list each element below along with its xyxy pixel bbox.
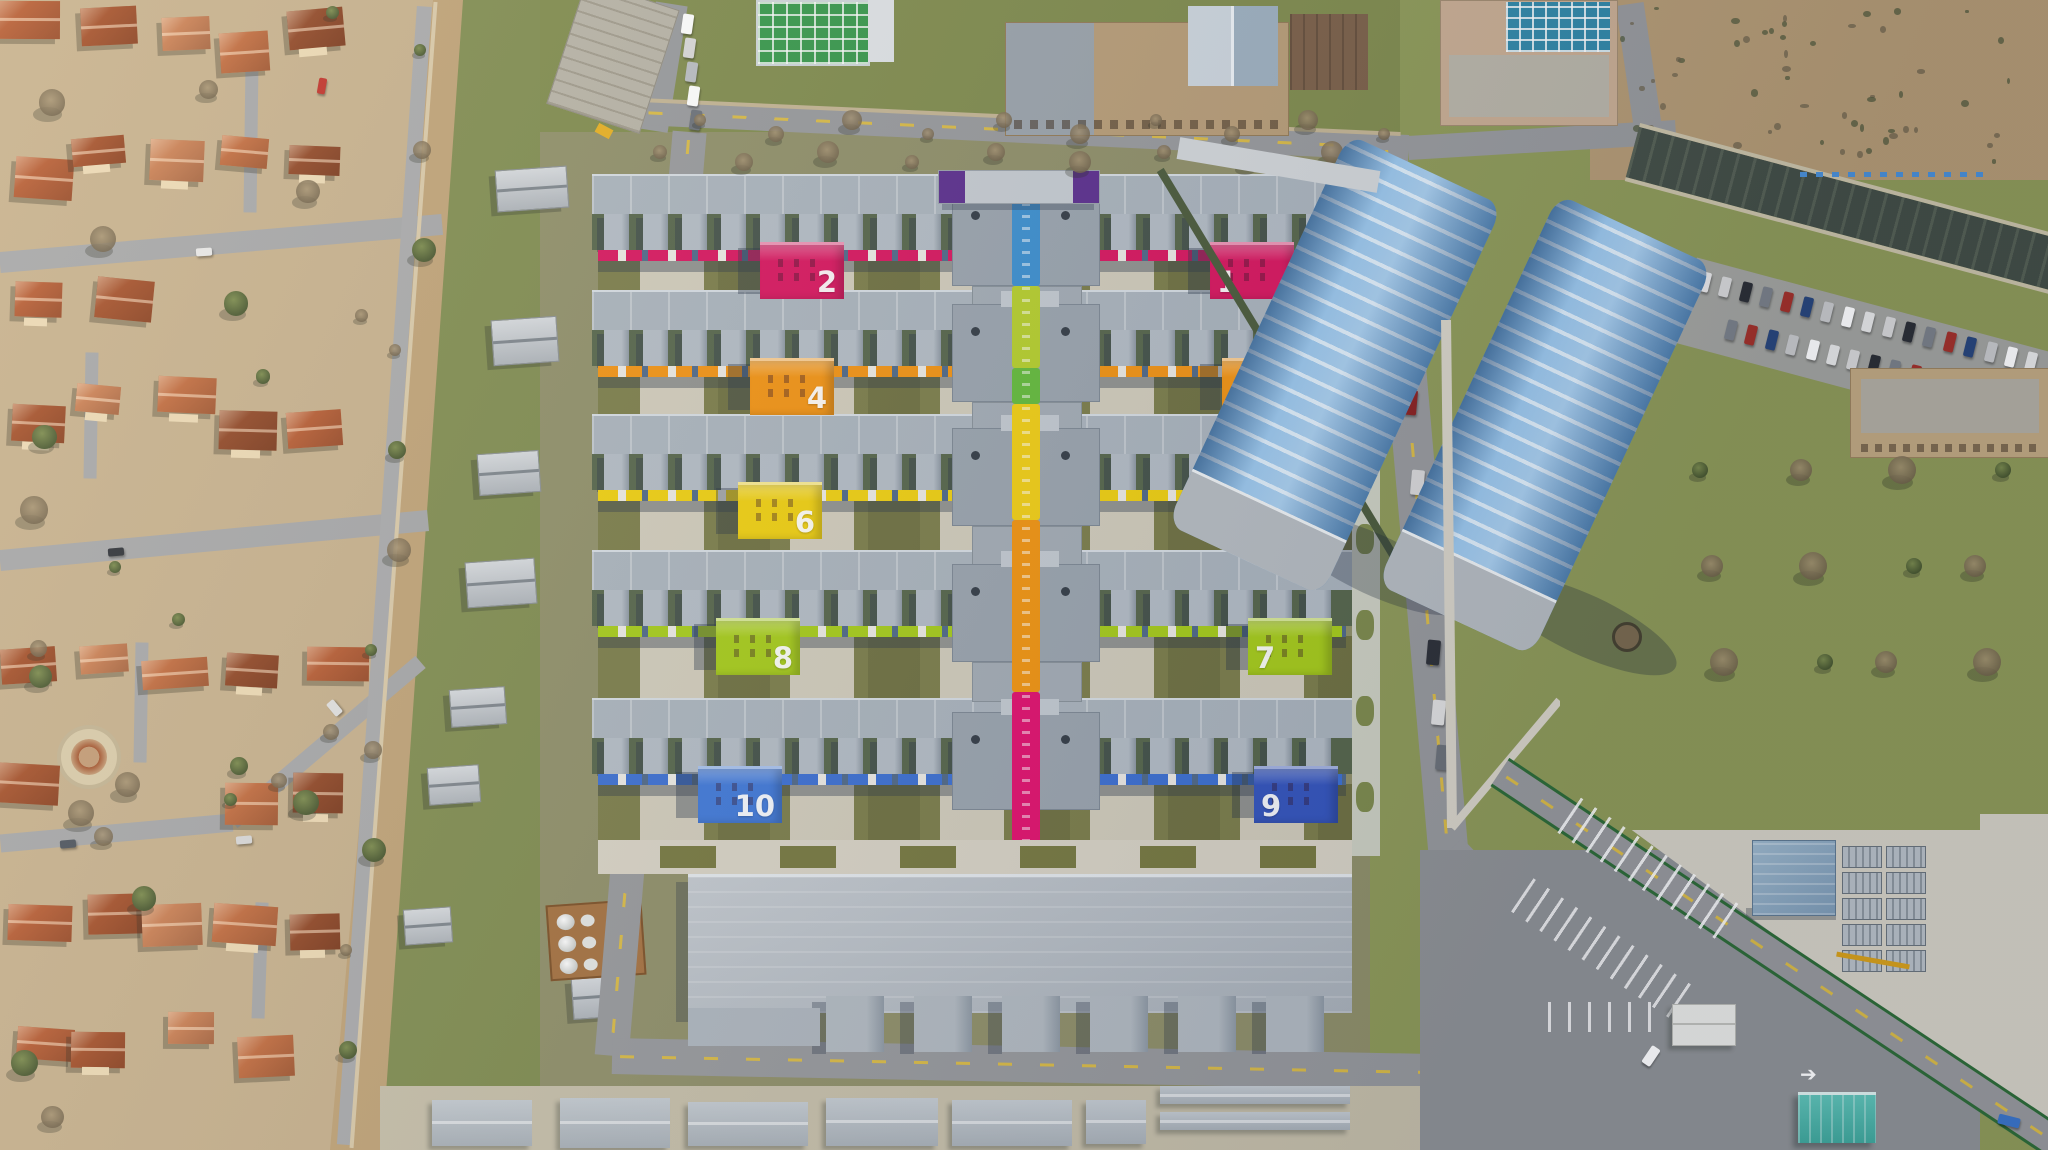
tree [132, 886, 157, 911]
endcap-window [1304, 783, 1309, 791]
endcap-window [794, 259, 799, 267]
bare-tree [735, 153, 753, 171]
endcap-window [1304, 797, 1309, 805]
woodland-tree [1639, 86, 1644, 92]
green-rooftop-plant [756, 0, 870, 66]
roof-tooth [1111, 738, 1136, 776]
car [236, 835, 253, 844]
endcap-window [1244, 259, 1249, 267]
building-number: 4 [807, 384, 827, 413]
cooling-unit [1842, 846, 1882, 868]
storage-tank [556, 913, 575, 930]
roof-tooth [1150, 214, 1175, 252]
big-building-annex [688, 1008, 820, 1046]
east-tan-building [1850, 368, 2048, 458]
endcap-window [1288, 797, 1293, 805]
roof-tooth [1150, 738, 1175, 776]
endcap-window [778, 273, 783, 281]
rooftop-vent [971, 587, 980, 596]
car [60, 839, 77, 848]
roof-ribs [688, 877, 1352, 1013]
tree [293, 790, 319, 816]
bare-tree [817, 141, 839, 163]
roof-tooth [838, 590, 863, 628]
warehouse-roof [952, 1100, 1072, 1146]
shed-ridge [451, 703, 505, 710]
big-building-tooth [914, 996, 972, 1052]
bare-tree [1888, 456, 1916, 484]
bare-tree [694, 114, 706, 126]
south-lawn-patch [900, 846, 956, 868]
shed-ridge [429, 781, 479, 787]
endcap-window [788, 499, 793, 507]
roof-ridge [287, 425, 342, 432]
villa-house [289, 914, 340, 951]
ridge [1160, 1120, 1350, 1123]
villa-house [149, 138, 205, 182]
utility-shed [403, 906, 453, 945]
building-endcap-9: 9 [1254, 766, 1338, 823]
endcap-shadow [1200, 364, 1222, 410]
storage-tank [582, 936, 597, 949]
gate-end-purple [939, 171, 965, 203]
rooftop-vent [971, 211, 980, 220]
roof-tooth [916, 214, 941, 252]
roof-tooth [1111, 590, 1136, 628]
villa-house [80, 6, 138, 47]
roof-ridge [15, 298, 62, 302]
utility-shed [477, 450, 542, 496]
roof-ridge [0, 780, 60, 787]
bike-rack [1912, 172, 1919, 177]
woodland-tree [1762, 30, 1768, 35]
roof-ridge [219, 428, 277, 433]
warehouse-roof [1086, 1100, 1146, 1144]
roof-ridge [238, 1054, 294, 1060]
building-number: 8 [773, 644, 793, 673]
woodland-tree [1880, 26, 1886, 33]
roof-ridge [15, 175, 73, 182]
roof-tooth [838, 330, 863, 368]
south-lawn-patch [1260, 846, 1316, 868]
bare-tree [1799, 552, 1827, 580]
tree [256, 369, 270, 383]
tx [1798, 1095, 1876, 1143]
roof-ridge [150, 157, 204, 162]
roof-tooth [1189, 590, 1214, 628]
warehouse-roof [1160, 1112, 1350, 1130]
bike-rack [1944, 172, 1951, 177]
plaza-pattern [71, 739, 107, 775]
endcap-shadow [676, 772, 698, 818]
grid [1506, 2, 1610, 52]
roof-tooth [721, 330, 746, 368]
woodland-tree [1784, 50, 1788, 58]
woodland-tree [1782, 66, 1791, 72]
endcap-window [1282, 649, 1287, 657]
tooth-shadow [900, 1002, 914, 1054]
woodland-tree [1769, 28, 1774, 34]
tooth-shadow [988, 1002, 1002, 1054]
tree [32, 425, 56, 449]
ridge [560, 1121, 670, 1124]
equipment-island-lawn [1560, 690, 1980, 830]
bare-tree [1710, 648, 1738, 676]
bike-rack [1880, 172, 1887, 177]
villa-house [219, 31, 271, 74]
shed-ridge [479, 469, 539, 476]
pump-house [1752, 840, 1836, 916]
ridge [1231, 6, 1234, 86]
roof-tooth [1111, 214, 1136, 252]
bike-rack [1960, 172, 1967, 177]
villa-house [14, 282, 62, 319]
ridge [1086, 1120, 1146, 1123]
roof-ridge [168, 1027, 214, 1030]
roof-ridge [221, 149, 268, 156]
roof-tooth [916, 738, 941, 776]
endcap-window [1260, 273, 1265, 281]
roof-tooth [877, 214, 902, 252]
shed-ridge [467, 578, 535, 586]
bare-tree [1964, 555, 1986, 577]
endcap-window [800, 389, 805, 397]
villa-house [75, 383, 122, 415]
bare-tree [922, 128, 934, 140]
endcap-window [1244, 273, 1249, 281]
villa-house [286, 409, 344, 449]
roof-ridge [220, 49, 270, 55]
villa-house [8, 904, 74, 942]
endcap-shadow [694, 624, 716, 670]
roof-tooth [1228, 738, 1253, 776]
endcap-window [768, 389, 773, 397]
storage-tank [558, 935, 577, 952]
south-lawn-patch [1140, 846, 1196, 868]
big-building-tooth [1090, 996, 1148, 1052]
roof-ridge [307, 662, 369, 666]
endcap-window [766, 635, 771, 643]
house-patio [231, 449, 260, 458]
roof-ridge [290, 930, 340, 934]
woodland-tree [1857, 151, 1862, 158]
endcap-window [756, 499, 761, 507]
roof-tooth [877, 738, 902, 776]
bare-tree [1875, 651, 1897, 673]
tx [1290, 14, 1368, 90]
tooth-shadow [1076, 1002, 1090, 1054]
woodland-tree [1751, 89, 1759, 96]
bare-tree [842, 110, 862, 130]
rooftop-vent [971, 735, 980, 744]
roof-ridge [96, 296, 153, 305]
bare-tree [1150, 114, 1162, 126]
car [1425, 639, 1440, 665]
house-patio [169, 413, 198, 422]
roof-tooth [877, 454, 902, 492]
south-lawn-patch [780, 846, 836, 868]
woodland-tree [1780, 35, 1786, 40]
cooling-unit [1842, 924, 1882, 946]
villa-house [220, 135, 269, 169]
endcap-window [810, 273, 815, 281]
window-band [1014, 120, 1278, 129]
roof-tooth [838, 454, 863, 492]
building-endcap-4: 4 [750, 358, 834, 415]
roof-tooth [916, 454, 941, 492]
endcap-window [794, 273, 799, 281]
roof-tooth [838, 738, 863, 776]
roof-tooth [1150, 454, 1175, 492]
endcap-window [778, 259, 783, 267]
woodland-tree [1774, 123, 1781, 130]
roof-tooth [682, 454, 707, 492]
bare-tree [115, 772, 140, 797]
solar-panel-grid [1506, 2, 1610, 52]
bike-rack [1800, 172, 1807, 177]
bare-tree [1157, 145, 1171, 159]
building-endcap-2: 2 [760, 242, 844, 299]
endcap-window [734, 649, 739, 657]
villa-house [225, 652, 279, 688]
villa-house [157, 376, 216, 415]
endcap-window [800, 375, 805, 383]
bare-tree [30, 640, 47, 657]
endcap-window [750, 635, 755, 643]
endcap-shadow [728, 364, 750, 410]
bike-rack [1896, 172, 1903, 177]
tree [11, 1050, 38, 1077]
bare-tree [41, 1106, 63, 1128]
woodland-tree [1743, 36, 1750, 43]
bare-tree [1070, 124, 1090, 144]
roof-tooth [604, 738, 629, 776]
roof-tooth [643, 590, 668, 628]
roof-ridge [71, 1048, 125, 1052]
bare-tree [387, 538, 411, 562]
utility-shed [464, 558, 537, 609]
parking-stripes-small [1548, 1002, 1663, 1032]
warehouse-roof [560, 1098, 670, 1148]
south-lawn-patch [660, 846, 716, 868]
woodland-tree [1965, 10, 1968, 14]
flat-roof [1861, 379, 2039, 433]
bare-tree [653, 145, 667, 159]
storage-tank [559, 957, 578, 974]
roof-ridge [142, 922, 202, 927]
bare-tree [1298, 110, 1318, 130]
roof-tooth [604, 214, 629, 252]
tree [412, 238, 436, 262]
bare-tree [1069, 151, 1091, 173]
verge-planting [1356, 782, 1374, 812]
bare-tree [39, 89, 65, 115]
bare-tree [768, 126, 784, 142]
bike-rack [1848, 172, 1855, 177]
endcap-window [750, 649, 755, 657]
tree [1995, 462, 2011, 478]
round-tank [1612, 622, 1642, 652]
cooling-unit [1886, 846, 1926, 868]
tree [1817, 654, 1833, 670]
bare-tree [1790, 459, 1812, 481]
woodland-tree [1866, 148, 1872, 154]
woodland-tree [1651, 79, 1654, 83]
roof-tooth [604, 590, 629, 628]
storage-tank [580, 914, 595, 927]
villa-house [71, 135, 127, 168]
bare-tree [355, 309, 368, 322]
roof-tooth [643, 738, 668, 776]
warehouse-roof [1160, 1086, 1350, 1104]
roof-ridge [8, 920, 73, 925]
house-patio [300, 950, 325, 959]
tree [1692, 462, 1708, 478]
campus-south-road-centerline [620, 1055, 1424, 1074]
endcap-window [716, 797, 721, 805]
woodland-tree [1883, 137, 1889, 144]
bare-tree [296, 180, 319, 203]
big-building-tooth [1002, 996, 1060, 1052]
white-shed [1672, 1004, 1736, 1046]
building-number: 2 [817, 268, 837, 297]
storage-tank [583, 958, 598, 971]
bare-tree [323, 724, 339, 740]
ridge [432, 1121, 532, 1124]
bare-tree [90, 226, 116, 252]
tree [414, 44, 426, 56]
roof-tooth [682, 214, 707, 252]
woodland-tree [1888, 129, 1895, 133]
teal-roof-building [1798, 1092, 1876, 1143]
building-endcap-8: 8 [716, 618, 800, 675]
roof-tooth [916, 590, 941, 628]
bare-tree [20, 496, 48, 524]
bike-rack [1864, 172, 1871, 177]
endcap-window [784, 389, 789, 397]
utility-shed [427, 764, 482, 806]
roof-tooth [643, 330, 668, 368]
tooth-shadow [1252, 1002, 1266, 1054]
roof-ridge [72, 147, 125, 155]
woodland-tree [1676, 57, 1681, 62]
tree [29, 665, 52, 688]
warehouse-roof [826, 1098, 938, 1146]
grid [758, 2, 868, 64]
woodland-tree [1992, 159, 1997, 163]
roof-tooth [604, 454, 629, 492]
roof-tooth [643, 454, 668, 492]
window-band [1861, 444, 2039, 452]
cooling-unit [1842, 872, 1882, 894]
cooling-unit [1886, 872, 1926, 894]
villa-house [79, 644, 129, 675]
building-endcap-6: 6 [738, 482, 822, 539]
big-building-tooth [826, 996, 884, 1052]
endcap-window [1298, 635, 1303, 643]
endcap-window [810, 259, 815, 267]
car [108, 547, 125, 556]
endcap-window [766, 649, 771, 657]
verge-planting [1356, 610, 1374, 640]
cooling-unit [1842, 898, 1882, 920]
villa-house [219, 410, 278, 451]
woodland-tree [1867, 97, 1875, 102]
rooftop-vent [1061, 735, 1070, 744]
villa-house [307, 647, 369, 682]
roof-ridge [289, 158, 340, 163]
rooftop-vent [1061, 327, 1070, 336]
endcap-shadow [1232, 772, 1254, 818]
bare-tree [271, 773, 287, 789]
endcap-window [772, 499, 777, 507]
building-number: 6 [795, 508, 815, 537]
rooftop-vent [1061, 451, 1070, 460]
roof-ridge [213, 921, 277, 928]
logistics-building-roof [688, 874, 1352, 1013]
roof-tooth [877, 590, 902, 628]
bike-rack [1928, 172, 1935, 177]
roof-tooth [799, 738, 824, 776]
verge-planting [1356, 696, 1374, 726]
roof-ridge [81, 23, 137, 29]
villa-house [0, 1, 61, 39]
bare-tree [364, 741, 382, 759]
spine-skylight-ticks [1022, 192, 1030, 866]
villa-house [14, 156, 74, 201]
endcap-window [756, 513, 761, 521]
villa-house [71, 1031, 126, 1067]
ridge [688, 1122, 808, 1125]
endcap-window [1260, 259, 1265, 267]
tree [224, 291, 248, 315]
plant-annex [868, 0, 894, 62]
villa-house [161, 16, 211, 51]
roof-ridge [0, 18, 61, 21]
endcap-window [784, 375, 789, 383]
house-patio [82, 1067, 109, 1075]
villa-house [212, 903, 279, 946]
big-building-tooth [1266, 996, 1324, 1052]
warehouse-roof [432, 1100, 532, 1146]
roof-tooth [682, 590, 707, 628]
rooftop-vent [1061, 211, 1070, 220]
endcap-window [716, 783, 721, 791]
villa-house [0, 762, 61, 805]
endcap-shadow [1226, 624, 1248, 670]
flat-roof [1449, 55, 1609, 117]
woodland-tree [1620, 36, 1624, 42]
ridge [1673, 1023, 1735, 1025]
woodland-tree [1800, 104, 1808, 107]
car [1431, 699, 1446, 725]
woodland-tree [1987, 143, 1992, 148]
rooftop-vent [971, 327, 980, 336]
roof-ridge [288, 24, 344, 32]
bare-tree [1378, 128, 1390, 140]
house-patio [24, 317, 48, 326]
bare-tree [413, 141, 431, 159]
road-arrow-marking: ➔ [1800, 1062, 1840, 1082]
ridge [952, 1121, 1072, 1124]
gable-roof-building [1188, 6, 1278, 86]
utility-shed [490, 316, 559, 366]
woodland-tree [1768, 130, 1773, 134]
roof-tooth [721, 214, 746, 252]
woodland-tree [1894, 8, 1901, 14]
ridge [826, 1120, 938, 1123]
woodland-tree [1917, 69, 1926, 73]
